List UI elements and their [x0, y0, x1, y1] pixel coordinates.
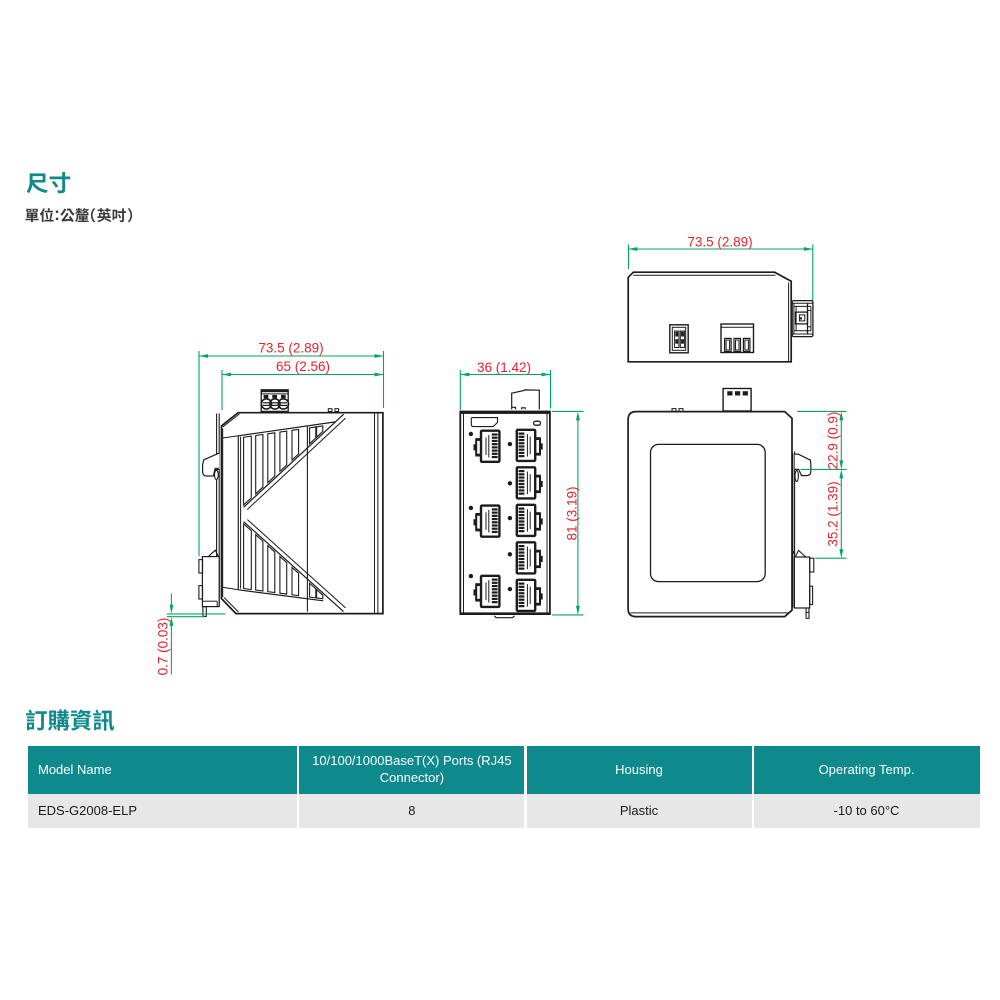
svg-text:35.2 (1.39): 35.2 (1.39)	[825, 481, 840, 546]
svg-text:65 (2.56): 65 (2.56)	[276, 359, 330, 374]
svg-text:73.5 (2.89): 73.5 (2.89)	[687, 234, 752, 249]
svg-text:73.5 (2.89): 73.5 (2.89)	[258, 341, 323, 356]
svg-text:81 (3.19): 81 (3.19)	[565, 486, 580, 540]
svg-text:36 (1.42): 36 (1.42)	[477, 360, 531, 375]
svg-text:0.7 (0.03): 0.7 (0.03)	[155, 618, 170, 676]
svg-text:22.9 (0.9): 22.9 (0.9)	[825, 412, 840, 470]
